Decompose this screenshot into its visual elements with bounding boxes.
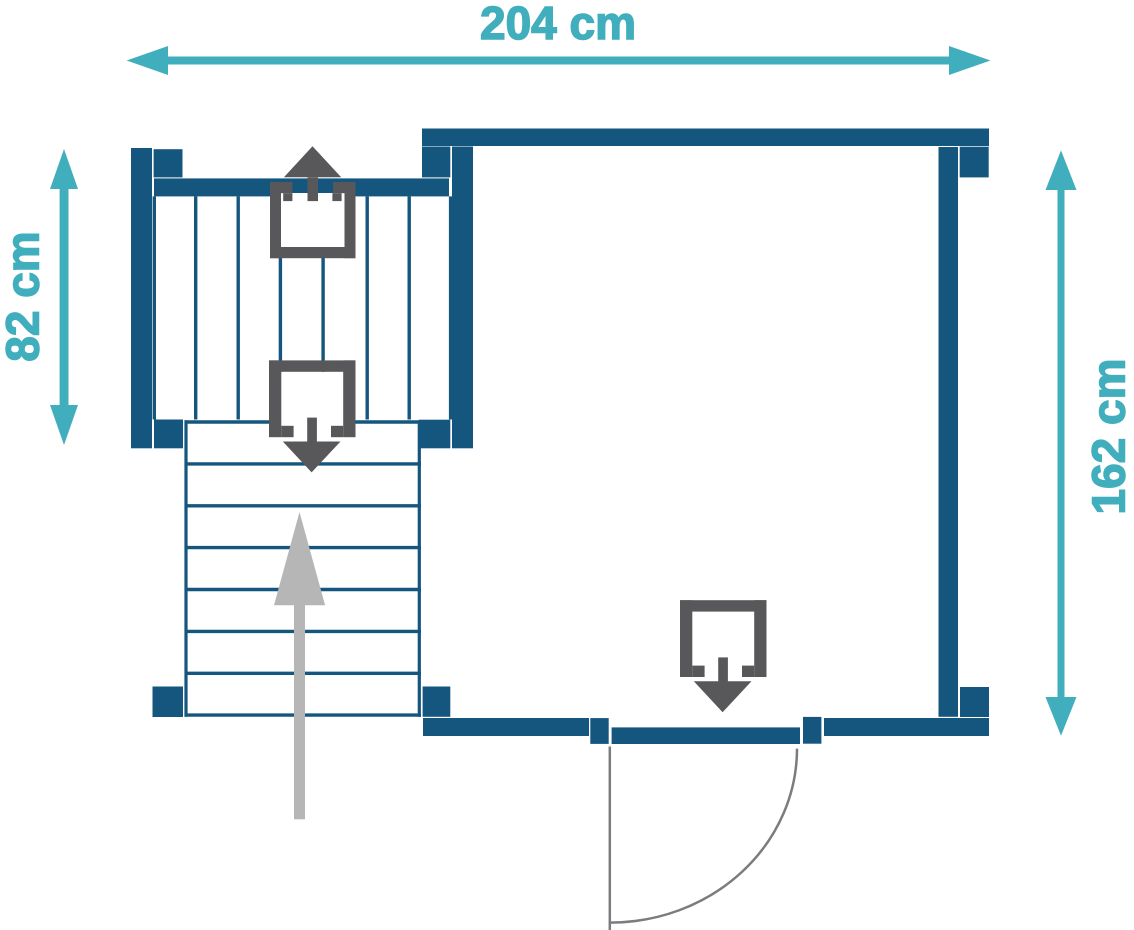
svg-text:82 cm: 82 cm [0, 231, 49, 361]
svg-text:162 cm: 162 cm [1083, 358, 1134, 514]
svg-text:204 cm: 204 cm [480, 0, 636, 49]
